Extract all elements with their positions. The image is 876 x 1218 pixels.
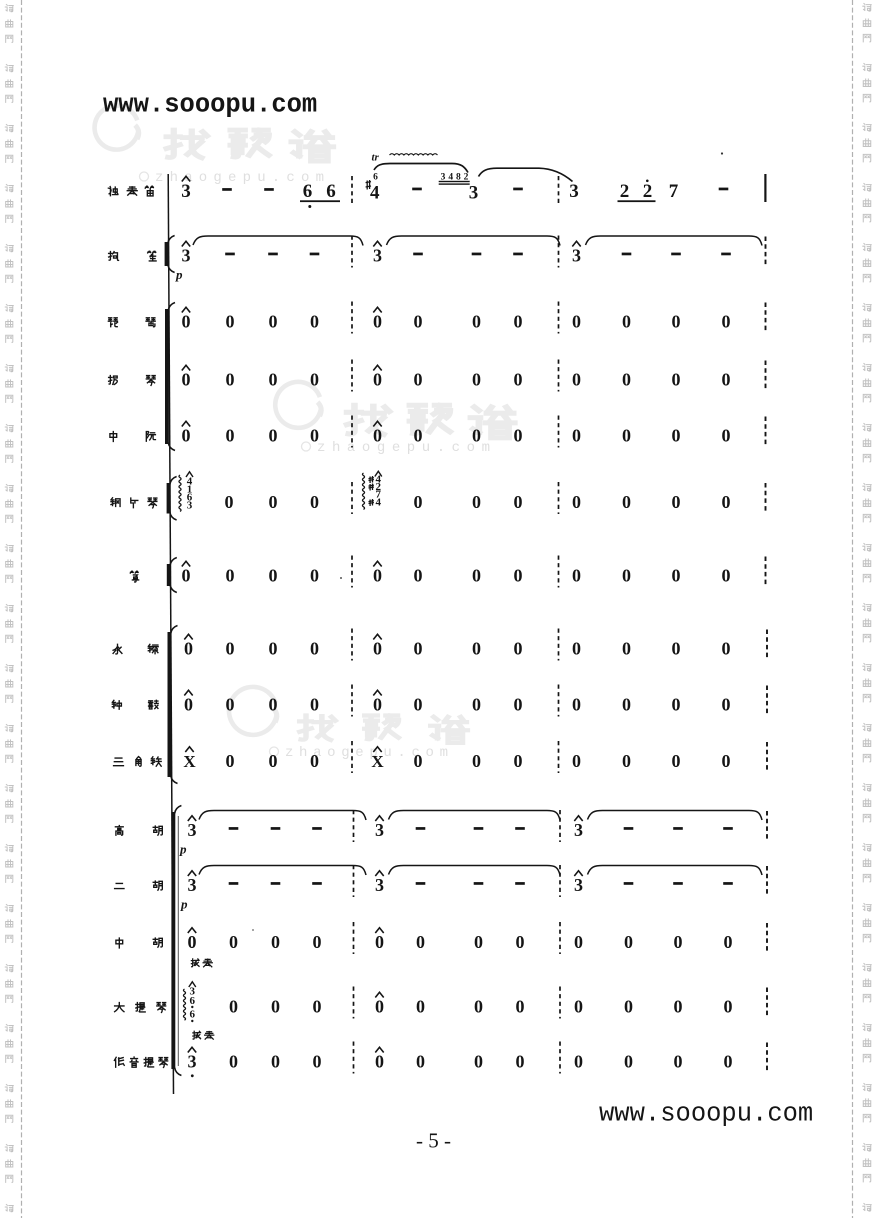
svg-text:0: 0: [722, 492, 731, 512]
svg-text:4: 4: [376, 497, 382, 509]
svg-text:0: 0: [472, 312, 481, 332]
svg-text:0: 0: [622, 312, 631, 332]
svg-text:3: 3: [569, 181, 579, 202]
svg-text:0: 0: [622, 492, 631, 512]
svg-text:0: 0: [622, 566, 631, 586]
svg-text:0: 0: [514, 639, 523, 659]
svg-text:0: 0: [572, 492, 581, 512]
svg-text:0: 0: [624, 1052, 633, 1072]
svg-text:0: 0: [313, 1052, 322, 1072]
svg-text:2: 2: [620, 181, 630, 202]
svg-text:0: 0: [472, 370, 481, 390]
svg-text:0: 0: [182, 370, 191, 390]
svg-text:0: 0: [416, 932, 425, 952]
svg-text:3: 3: [188, 1052, 197, 1072]
svg-text:0: 0: [310, 566, 319, 586]
svg-text:0: 0: [572, 751, 581, 771]
svg-text:zhaogepu.com: zhaogepu.com: [317, 440, 490, 456]
svg-text:6: 6: [190, 1008, 196, 1020]
svg-text:www.sooopu.com: www.sooopu.com: [599, 1100, 813, 1129]
svg-text:0: 0: [375, 997, 384, 1017]
svg-text:0: 0: [226, 312, 235, 332]
svg-text:0: 0: [514, 566, 523, 586]
svg-text:3: 3: [469, 183, 479, 204]
svg-text:0: 0: [310, 426, 319, 446]
svg-text:0: 0: [373, 426, 382, 446]
svg-text:p: p: [175, 267, 183, 282]
svg-text:p: p: [180, 897, 188, 912]
svg-text:0: 0: [229, 932, 238, 952]
svg-text:0: 0: [271, 1052, 280, 1072]
svg-text:0: 0: [269, 695, 278, 715]
svg-text:0: 0: [226, 695, 235, 715]
svg-text:0: 0: [226, 370, 235, 390]
svg-text:0: 0: [724, 997, 733, 1017]
svg-text:0: 0: [622, 751, 631, 771]
svg-text:0: 0: [313, 997, 322, 1017]
svg-text:0: 0: [229, 1052, 238, 1072]
svg-text:0: 0: [226, 639, 235, 659]
svg-text:0: 0: [624, 997, 633, 1017]
svg-text:0: 0: [574, 997, 583, 1017]
svg-text:0: 0: [622, 426, 631, 446]
svg-text:0: 0: [672, 370, 681, 390]
svg-text:0: 0: [572, 370, 581, 390]
svg-text:X: X: [371, 752, 384, 771]
svg-text:0: 0: [516, 932, 525, 952]
svg-text:0: 0: [310, 695, 319, 715]
svg-text:0: 0: [182, 426, 191, 446]
svg-text:0: 0: [414, 639, 423, 659]
svg-text:X: X: [183, 752, 196, 771]
svg-text:0: 0: [414, 751, 423, 771]
svg-text:0: 0: [514, 426, 523, 446]
svg-text:0: 0: [474, 1052, 483, 1072]
svg-text:0: 0: [672, 492, 681, 512]
svg-text:3: 3: [572, 246, 581, 266]
svg-text:0: 0: [474, 932, 483, 952]
svg-text:0: 0: [310, 370, 319, 390]
svg-text:0: 0: [472, 492, 481, 512]
svg-text:0: 0: [672, 426, 681, 446]
svg-text:3: 3: [188, 875, 197, 895]
svg-text:0: 0: [514, 492, 523, 512]
svg-text:0: 0: [416, 997, 425, 1017]
svg-text:3: 3: [375, 875, 384, 895]
svg-text:0: 0: [622, 370, 631, 390]
svg-text:0: 0: [269, 639, 278, 659]
svg-text:0: 0: [672, 566, 681, 586]
svg-text:0: 0: [674, 997, 683, 1017]
svg-text:0: 0: [572, 639, 581, 659]
svg-text:0: 0: [375, 1052, 384, 1072]
svg-text:3: 3: [182, 246, 191, 266]
svg-text:0: 0: [722, 695, 731, 715]
svg-text:0: 0: [373, 312, 382, 332]
svg-text:0: 0: [269, 426, 278, 446]
svg-text:0: 0: [516, 1052, 525, 1072]
svg-text:0: 0: [722, 566, 731, 586]
svg-text:3: 3: [187, 500, 193, 512]
svg-text:0: 0: [672, 639, 681, 659]
svg-text:0: 0: [672, 751, 681, 771]
svg-text:0: 0: [269, 312, 278, 332]
svg-text:www.sooopu.com: www.sooopu.com: [103, 91, 317, 120]
svg-text:0: 0: [226, 751, 235, 771]
svg-text:0: 0: [622, 639, 631, 659]
svg-text:0: 0: [624, 932, 633, 952]
svg-text:0: 0: [269, 566, 278, 586]
svg-text:- 5 -: - 5 -: [416, 1129, 451, 1153]
svg-text:p: p: [179, 842, 187, 857]
svg-text:0: 0: [514, 751, 523, 771]
svg-text:0: 0: [310, 751, 319, 771]
svg-text:0: 0: [674, 1052, 683, 1072]
svg-text:0: 0: [472, 751, 481, 771]
svg-text:0: 0: [271, 997, 280, 1017]
svg-text:3: 3: [574, 875, 583, 895]
svg-text:0: 0: [373, 639, 382, 659]
svg-text:0: 0: [414, 370, 423, 390]
svg-text:0: 0: [225, 492, 234, 512]
svg-text:0: 0: [722, 370, 731, 390]
svg-text:0: 0: [472, 566, 481, 586]
svg-text:0: 0: [414, 492, 423, 512]
svg-text:3: 3: [181, 181, 191, 202]
svg-text:0: 0: [722, 751, 731, 771]
svg-text:0: 0: [182, 566, 191, 586]
svg-text:6: 6: [190, 995, 196, 1007]
svg-text:0: 0: [310, 639, 319, 659]
svg-text:6: 6: [326, 181, 336, 202]
svg-text:0: 0: [310, 312, 319, 332]
svg-text:0: 0: [184, 639, 193, 659]
svg-text:0: 0: [572, 695, 581, 715]
svg-text:6: 6: [303, 181, 313, 202]
svg-text:0: 0: [310, 492, 319, 512]
svg-text:0: 0: [416, 1052, 425, 1072]
svg-text:2: 2: [643, 181, 653, 202]
svg-text:0: 0: [722, 312, 731, 332]
svg-text:0: 0: [269, 751, 278, 771]
svg-text:0: 0: [574, 932, 583, 952]
svg-text:0: 0: [572, 312, 581, 332]
svg-text:0: 0: [188, 932, 197, 952]
svg-text:0: 0: [414, 566, 423, 586]
svg-text:3: 3: [373, 246, 382, 266]
svg-text:0: 0: [226, 426, 235, 446]
svg-text:0: 0: [574, 1052, 583, 1072]
svg-text:0: 0: [672, 312, 681, 332]
svg-text:0: 0: [375, 932, 384, 952]
svg-text:0: 0: [226, 566, 235, 586]
svg-text:6: 6: [373, 173, 378, 183]
svg-text:0: 0: [472, 639, 481, 659]
svg-text:0: 0: [572, 426, 581, 446]
svg-text:0: 0: [622, 695, 631, 715]
svg-text:0: 0: [514, 370, 523, 390]
svg-text:0: 0: [373, 370, 382, 390]
svg-text:0: 0: [514, 312, 523, 332]
svg-text:0: 0: [271, 932, 280, 952]
svg-text:0: 0: [722, 639, 731, 659]
svg-text:0: 0: [572, 566, 581, 586]
svg-text:7: 7: [669, 181, 679, 202]
svg-text:0: 0: [672, 695, 681, 715]
svg-text:0: 0: [182, 312, 191, 332]
svg-text:0: 0: [229, 997, 238, 1017]
svg-text:0: 0: [184, 695, 193, 715]
svg-text:0: 0: [414, 312, 423, 332]
svg-text:0: 0: [724, 1052, 733, 1072]
svg-text:tr: tr: [372, 152, 380, 164]
svg-text:4: 4: [370, 183, 380, 204]
svg-text:0: 0: [269, 370, 278, 390]
svg-text:0: 0: [373, 566, 382, 586]
svg-text:0: 0: [269, 492, 278, 512]
svg-text:0: 0: [472, 695, 481, 715]
svg-text:0: 0: [514, 695, 523, 715]
svg-text:0: 0: [474, 997, 483, 1017]
svg-text:0: 0: [674, 932, 683, 952]
svg-text:0: 0: [373, 695, 382, 715]
svg-text:3: 3: [375, 820, 384, 840]
svg-text:0: 0: [516, 997, 525, 1017]
svg-text:0: 0: [313, 932, 322, 952]
svg-text:3: 3: [188, 820, 197, 840]
svg-text:3: 3: [574, 820, 583, 840]
svg-text:0: 0: [414, 695, 423, 715]
svg-text:0: 0: [472, 426, 481, 446]
svg-text:0: 0: [724, 932, 733, 952]
svg-text:0: 0: [414, 426, 423, 446]
svg-text:0: 0: [722, 426, 731, 446]
